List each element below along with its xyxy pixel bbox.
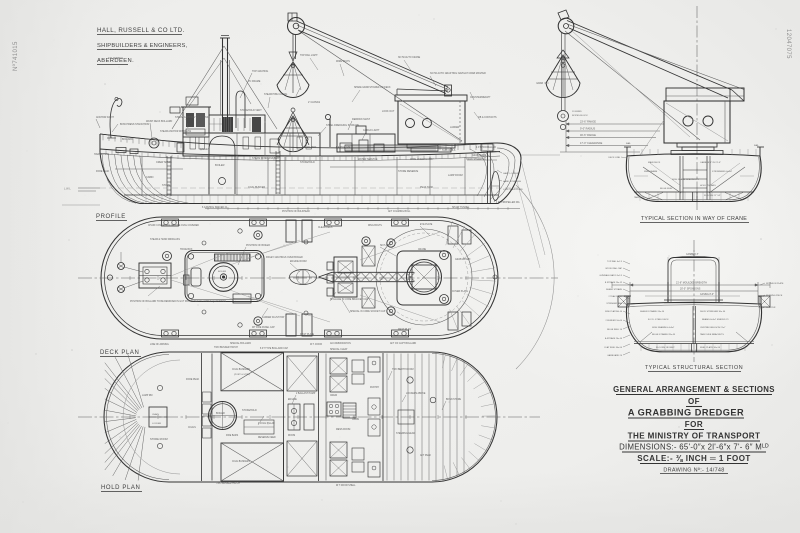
svg-text:(PORT & STBD): (PORT & STBD) [234, 374, 250, 376]
svg-text:LAMP ROOM: LAMP ROOM [448, 174, 463, 177]
svg-text:CREW: CREW [330, 395, 338, 397]
svg-text:PC FRAME: PC FRAME [248, 80, 261, 83]
svg-text:DECK STRINGER 30x 44: DECK STRINGER 30x 44 [700, 311, 726, 313]
svg-text:SIDE FRAME SPACING 21": SIDE FRAME SPACING 21" [672, 178, 700, 181]
svg-text:CAMBER 3": CAMBER 3" [686, 253, 699, 256]
svg-text:STEERING GEAR: STEERING GEAR [396, 432, 415, 435]
svg-text:BOW PRESS STANCHION: BOW PRESS STANCHION [120, 123, 149, 126]
svg-text:6 CASTING SPACED 21: 6 CASTING SPACED 21 [202, 206, 228, 209]
svg-text:COVER PLATE: COVER PLATE [452, 290, 468, 293]
svg-text:STEAM PIPE: STEAM PIPE [302, 146, 317, 149]
svg-text:GUNWALE BAR 3.5x3.5: GUNWALE BAR 3.5x3.5 [599, 274, 623, 277]
svg-text:TANK TOP: TANK TOP [634, 196, 645, 199]
svg-text:HAND STEERING: HAND STEERING [503, 180, 521, 183]
svg-text:4 FT PROPELLER: 4 FT PROPELLER [476, 146, 496, 149]
svg-text:MAST PLAN: MAST PLAN [398, 328, 411, 331]
svg-text:STEAM & HAND WINDLASS: STEAM & HAND WINDLASS [150, 238, 180, 241]
svg-text:STEAM PIPE CASING: STEAM PIPE CASING [264, 93, 287, 96]
svg-text:TYPICAL SECTION IN WAY OF: TYPICAL SECTION IN WAY OF CRANE [641, 216, 747, 222]
svg-text:STEEL DREDGING IN CRANE: STEEL DREDGING IN CRANE [326, 124, 360, 127]
svg-text:ROPES BLOCK: ROPES BLOCK [572, 115, 588, 117]
svg-text:SCALE:- ⅜ INCH ═ 1 FOOT: SCALE:- ⅜ INCH ═ 1 FOOT [637, 454, 751, 463]
svg-text:FORE PEAK: FORE PEAK [186, 378, 200, 381]
svg-text:46'-6" RANGE: 46'-6" RANGE [580, 134, 596, 137]
svg-text:SHELTER: SHELTER [766, 307, 776, 309]
svg-text:SHEER STRAKE 26x 44: SHEER STRAKE 26x 44 [640, 310, 665, 313]
svg-text:ENGINE: ENGINE [288, 399, 297, 401]
svg-text:TOP RAIL 6x2.5: TOP RAIL 6x2.5 [607, 260, 623, 263]
svg-text:LOOK OUT: LOOK OUT [382, 110, 395, 113]
svg-text:MAIN DECK: MAIN DECK [648, 161, 661, 164]
svg-text:COAL BUNKERS: COAL BUNKERS [232, 368, 250, 371]
svg-text:20'-0" SPONSONS: 20'-0" SPONSONS [680, 288, 701, 291]
svg-text:RUBBING PIECE: RUBBING PIECE [766, 295, 783, 297]
svg-text:SHAFT TUNNEL: SHAFT TUNNEL [452, 206, 470, 209]
svg-text:BOLLARD: BOLLARD [122, 138, 133, 141]
svg-text:HAND PUMP: HAND PUMP [336, 146, 351, 149]
svg-text:STORE RESERVE: STORE RESERVE [398, 170, 419, 173]
svg-text:KEEL PLATE 30x 60: KEEL PLATE 30x 60 [700, 346, 721, 349]
svg-text:FIRE BARS: FIRE BARS [226, 434, 239, 437]
svg-text:SIDE PLATING 40: SIDE PLATING 40 [605, 310, 623, 313]
svg-text:BILGE STRAKE 28x 46: BILGE STRAKE 28x 46 [652, 333, 676, 336]
svg-text:DECK LINE: DECK LINE [608, 157, 620, 159]
svg-text:TYPICAL STRUCTURAL SECTION: TYPICAL STRUCTURAL SECTION [645, 365, 743, 371]
svg-text:GALLEY: GALLEY [200, 148, 210, 151]
svg-text:W.T. DOOR: W.T. DOOR [310, 344, 322, 346]
svg-text:CAMBER 3" IN 21'-6": CAMBER 3" IN 21'-6" [700, 161, 721, 164]
svg-text:STORE ROOM: STORE ROOM [150, 437, 168, 441]
svg-text:SKYLIGHT: SKYLIGHT [380, 245, 392, 247]
svg-text:FLOORS 18 DEEP: FLOORS 18 DEEP [656, 347, 675, 349]
svg-text:DRAWING Nº:- 14/748: DRAWING Nº:- 14/748 [663, 467, 724, 474]
svg-text:COALS: COALS [188, 426, 196, 429]
svg-text:COAL BUNKER: COAL BUNKER [248, 186, 265, 189]
svg-text:TWO BERTH ROOM: TWO BERTH ROOM [392, 369, 414, 371]
svg-text:WIRE UNDERCARRY: WIRE UNDERCARRY [410, 158, 434, 161]
svg-text:SPILLAGE IN CORE BRACKET CAP: SPILLAGE IN CORE BRACKET CAP [330, 298, 369, 301]
svg-text:WEB FRAME: WEB FRAME [644, 170, 658, 173]
svg-text:STEAM CAPSTAN WINDLASS: STEAM CAPSTAN WINDLASS [175, 116, 209, 119]
svg-text:DECK PLAN: DECK PLAN [100, 350, 139, 356]
svg-text:ANCHOR DAVIT: ANCHOR DAVIT [96, 116, 114, 119]
svg-text:EYE PLATE: EYE PLATE [420, 223, 433, 226]
svg-text:TANK SIDE BRACKETS: TANK SIDE BRACKETS [700, 333, 724, 336]
svg-text:LINE OF AWNING: LINE OF AWNING [150, 343, 169, 346]
svg-text:STORE: STORE [162, 184, 171, 187]
svg-text:4 COAL PILLAR: 4 COAL PILLAR [258, 422, 275, 425]
svg-text:LOCKERS ABOVE: LOCKERS ABOVE [406, 392, 426, 395]
svg-text:CARGO LIGHT: CARGO LIGHT [363, 129, 380, 132]
svg-text:HOLD PILLARS: HOLD PILLARS [700, 184, 716, 187]
svg-text:BOILER: BOILER [218, 271, 226, 273]
svg-text:SHEER STRAKE: SHEER STRAKE [606, 288, 623, 291]
svg-text:FORE PEAK: FORE PEAK [96, 170, 110, 173]
svg-text:SPONSON PLATE: SPONSON PLATE [766, 282, 784, 285]
svg-text:POSITION OF BOLLARD TO BE REMO: POSITION OF BOLLARD TO BE REMOVED IN GUT… [130, 300, 226, 303]
svg-text:2' CANVAS: 2' CANVAS [308, 101, 321, 104]
svg-text:B STRAKE 24x 42: B STRAKE 24x 42 [605, 281, 623, 284]
svg-text:TWO BUNKER HATCH: TWO BUNKER HATCH [214, 346, 238, 349]
svg-text:LOCKER: LOCKER [152, 423, 161, 425]
svg-text:A STRAKE 26x 44: A STRAKE 26x 44 [605, 337, 623, 340]
svg-text:SPECIAL IN CORE SOCKET CAP: SPECIAL IN CORE SOCKET CAP [350, 310, 386, 313]
svg-text:21'-6" MOULDED BREADTH: 21'-6" MOULDED BREADTH [676, 282, 707, 285]
svg-text:W T DOOR SHELL: W T DOOR SHELL [336, 485, 356, 487]
svg-text:STEAM ANCHOR WINDLASS: STEAM ANCHOR WINDLASS [160, 130, 191, 133]
svg-text:CRANE: CRANE [418, 248, 427, 251]
svg-text:JIB & CONTACTS: JIB & CONTACTS [478, 116, 497, 119]
svg-text:BILGE KEEL: BILGE KEEL [660, 188, 673, 190]
svg-text:AFT OF CAPT BOLLARD: AFT OF CAPT BOLLARD [390, 342, 417, 345]
svg-text:Nº741015: Nº741015 [12, 41, 19, 71]
svg-text:SIDE FRAMING 4x3x7: SIDE FRAMING 4x3x7 [652, 326, 675, 329]
svg-text:LADDER: LADDER [450, 126, 460, 129]
svg-text:MESS ROOM: MESS ROOM [336, 429, 350, 431]
svg-text:MAST PLATE: MAST PLATE [300, 333, 315, 336]
svg-text:WT FIRE PANEL CAP: WT FIRE PANEL CAP [252, 326, 275, 329]
svg-text:LAMP LOCKER: LAMP LOCKER [503, 172, 519, 175]
svg-text:BILGE KEEL 10: BILGE KEEL 10 [607, 329, 623, 331]
svg-text:CLEAR DECK: CLEAR DECK [318, 226, 333, 229]
svg-text:THE MINISTRY OF TRANSPORT: THE MINISTRY OF TRANSPORT [628, 432, 761, 441]
svg-text:TRICE BOX: TRICE BOX [180, 249, 193, 251]
svg-text:CENTRE KEELSON 21x7: CENTRE KEELSON 21x7 [700, 327, 726, 329]
svg-text:TOP RAIL LIGHT: TOP RAIL LIGHT [300, 54, 318, 57]
svg-text:2 TEAK DECK: 2 TEAK DECK [609, 295, 623, 298]
svg-text:ENGINE ROOM: ENGINE ROOM [290, 261, 307, 263]
svg-text:COAL BUNKERS: COAL BUNKERS [232, 460, 250, 463]
svg-text:GENERAL ARRANGEMENT & SECTI: GENERAL ARRANGEMENT & SECTIONS [613, 385, 775, 394]
svg-text:SPECIAL CLEAT: SPECIAL CLEAT [330, 348, 348, 351]
svg-text:FLAT KEEL 30x 60: FLAT KEEL 30x 60 [604, 346, 622, 349]
svg-text:ROOM: ROOM [288, 435, 295, 437]
svg-text:23'-6" RANGE: 23'-6" RANGE [580, 121, 596, 124]
svg-text:BOILER: BOILER [216, 412, 225, 415]
svg-text:NO 50 AUTO CRANE: NO 50 AUTO CRANE [398, 56, 421, 59]
svg-text:AFT COAMING BOLL: AFT COAMING BOLL [388, 210, 411, 213]
svg-text:HOLD PLAN: HOLD PLAN [101, 485, 140, 491]
svg-text:BEAMS 6x3x7 SPACED 21: BEAMS 6x3x7 SPACED 21 [702, 318, 729, 321]
svg-text:STOKEHOLD VENT: STOKEHOLD VENT [240, 109, 262, 112]
svg-text:STOKEHOLD: STOKEHOLD [242, 409, 257, 412]
svg-text:A GRABBING DREDGER: A GRABBING DREDGER [628, 408, 744, 418]
svg-text:BOILER: BOILER [215, 163, 225, 167]
svg-text:2 BALLAST PUMP: 2 BALLAST PUMP [296, 392, 316, 395]
svg-text:PANTRY: PANTRY [370, 386, 380, 389]
svg-text:RING BOLTS: RING BOLTS [368, 225, 382, 227]
svg-text:STIFFENERS 6x3x7: STIFFENERS 6x3x7 [712, 171, 733, 173]
svg-text:TOP GRATING: TOP GRATING [252, 70, 268, 73]
svg-text:HALL, RUSSELL & CO LTD.: HALL, RUSSELL & CO LTD. [97, 27, 185, 34]
svg-text:GRAB GUIDE: GRAB GUIDE [472, 154, 487, 157]
svg-text:STEAM WINDLASS BED: STEAM WINDLASS BED [252, 157, 279, 160]
svg-text:CHAIN: CHAIN [152, 413, 159, 416]
svg-text:NO 50 AUTO GRAFTING NAVIGAT CR: NO 50 AUTO GRAFTING NAVIGAT CRAB MASTER [430, 72, 486, 75]
svg-text:LADDER FLUSH HAT: LADDER FLUSH HAT [262, 316, 285, 319]
svg-text:OF: OF [688, 397, 700, 406]
svg-text:2 FENDER 10x10: 2 FENDER 10x10 [605, 320, 622, 322]
svg-text:PEAK TANK: PEAK TANK [420, 186, 434, 189]
svg-text:HAND STEERING: HAND STEERING [466, 158, 486, 161]
svg-text:FIDLEY GRATINGS OVER BOILER: FIDLEY GRATINGS OVER BOILER [266, 256, 303, 259]
svg-text:CABIN: CABIN [352, 418, 359, 421]
svg-text:SPECIAL BOLLARD: SPECIAL BOLLARD [230, 342, 251, 345]
svg-text:SPARE GRAB STOWED ON DECK: SPARE GRAB STOWED ON DECK [354, 86, 391, 89]
svg-text:4 FT PROPELLER DIA: 4 FT PROPELLER DIA [496, 201, 520, 204]
svg-text:STRINGER BAR: STRINGER BAR [606, 302, 622, 305]
svg-text:RESERVE FEED: RESERVE FEED [258, 437, 276, 439]
svg-text:HAWSE PIPE: HAWSE PIPE [94, 153, 109, 156]
svg-text:GRAB WHARF: GRAB WHARF [455, 258, 471, 261]
svg-text:RAIL: RAIL [754, 144, 760, 147]
svg-text:CABIN: CABIN [146, 176, 154, 179]
svg-text:12047075: 12047075 [785, 29, 791, 59]
svg-text:B.C.D. STEEL DECK: B.C.D. STEEL DECK [648, 319, 669, 321]
svg-text:CREW SPACE: CREW SPACE [156, 161, 172, 164]
svg-text:8 FT TYPE BOLLARD CAP: 8 FT TYPE BOLLARD CAP [260, 347, 288, 350]
svg-text:BOSN STORE: BOSN STORE [446, 399, 461, 401]
svg-text:SHIPBUILDERS & ENGINEERS,: SHIPBUILDERS & ENGINEERS, [97, 43, 188, 49]
svg-text:TAFF RAILS: TAFF RAILS [442, 149, 456, 152]
svg-text:LAMP RM: LAMP RM [142, 394, 153, 397]
svg-text:WASH DECK BOLLARD: WASH DECK BOLLARD [146, 120, 172, 123]
svg-text:CYL RUDDLE: CYL RUDDLE [108, 57, 123, 60]
svg-text:STOKEHOLD: STOKEHOLD [300, 161, 315, 164]
svg-text:FLOORS 21" SP: FLOORS 21" SP [704, 195, 721, 197]
svg-text:WOOD RAIL CAP: WOOD RAIL CAP [605, 267, 622, 270]
svg-text:TWO BUNKER HATCH: TWO BUNKER HATCH [216, 482, 240, 485]
svg-text:DERRICK MAST: DERRICK MAST [352, 118, 371, 121]
svg-text:CHAFF COVERINGS GRITTLE OVAL C: CHAFF COVERINGS GRITTLE OVAL COVERED [148, 224, 199, 227]
svg-text:ACCOMMODATION: ACCOMMODATION [330, 342, 351, 345]
svg-text:DIMENSIONS:- 65'-0″x 2l'-6″x 7: DIMENSIONS:- 65'-0″x 2l'-6″x 7'- 6″ Mᴸᴰ [619, 443, 769, 452]
svg-text:19 SWRD: 19 SWRD [572, 111, 582, 113]
svg-text:GRAB: GRAB [536, 82, 543, 85]
svg-text:WIRE STAYS: WIRE STAYS [336, 60, 350, 63]
svg-text:RAIL: RAIL [626, 142, 632, 145]
svg-text:POSITION OF BULKHEAD: POSITION OF BULKHEAD [282, 210, 310, 213]
svg-text:17'-0" CLEARANCE: 17'-0" CLEARANCE [580, 142, 603, 145]
svg-text:FOR: FOR [685, 420, 703, 429]
svg-text:9'-0" RADIUS: 9'-0" RADIUS [580, 128, 595, 131]
svg-text:GARBOARD 24: GARBOARD 24 [607, 354, 623, 357]
svg-text:PROFILE: PROFILE [96, 214, 126, 220]
svg-text:AFT PEAK: AFT PEAK [420, 454, 432, 457]
svg-text:WATER SERVICE: WATER SERVICE [358, 158, 378, 161]
svg-text:CASING 8'-0": CASING 8'-0" [700, 293, 714, 296]
svg-text:L.W.L: L.W.L [64, 187, 71, 191]
svg-text:POSITION OF BOILER: POSITION OF BOILER [246, 245, 270, 247]
